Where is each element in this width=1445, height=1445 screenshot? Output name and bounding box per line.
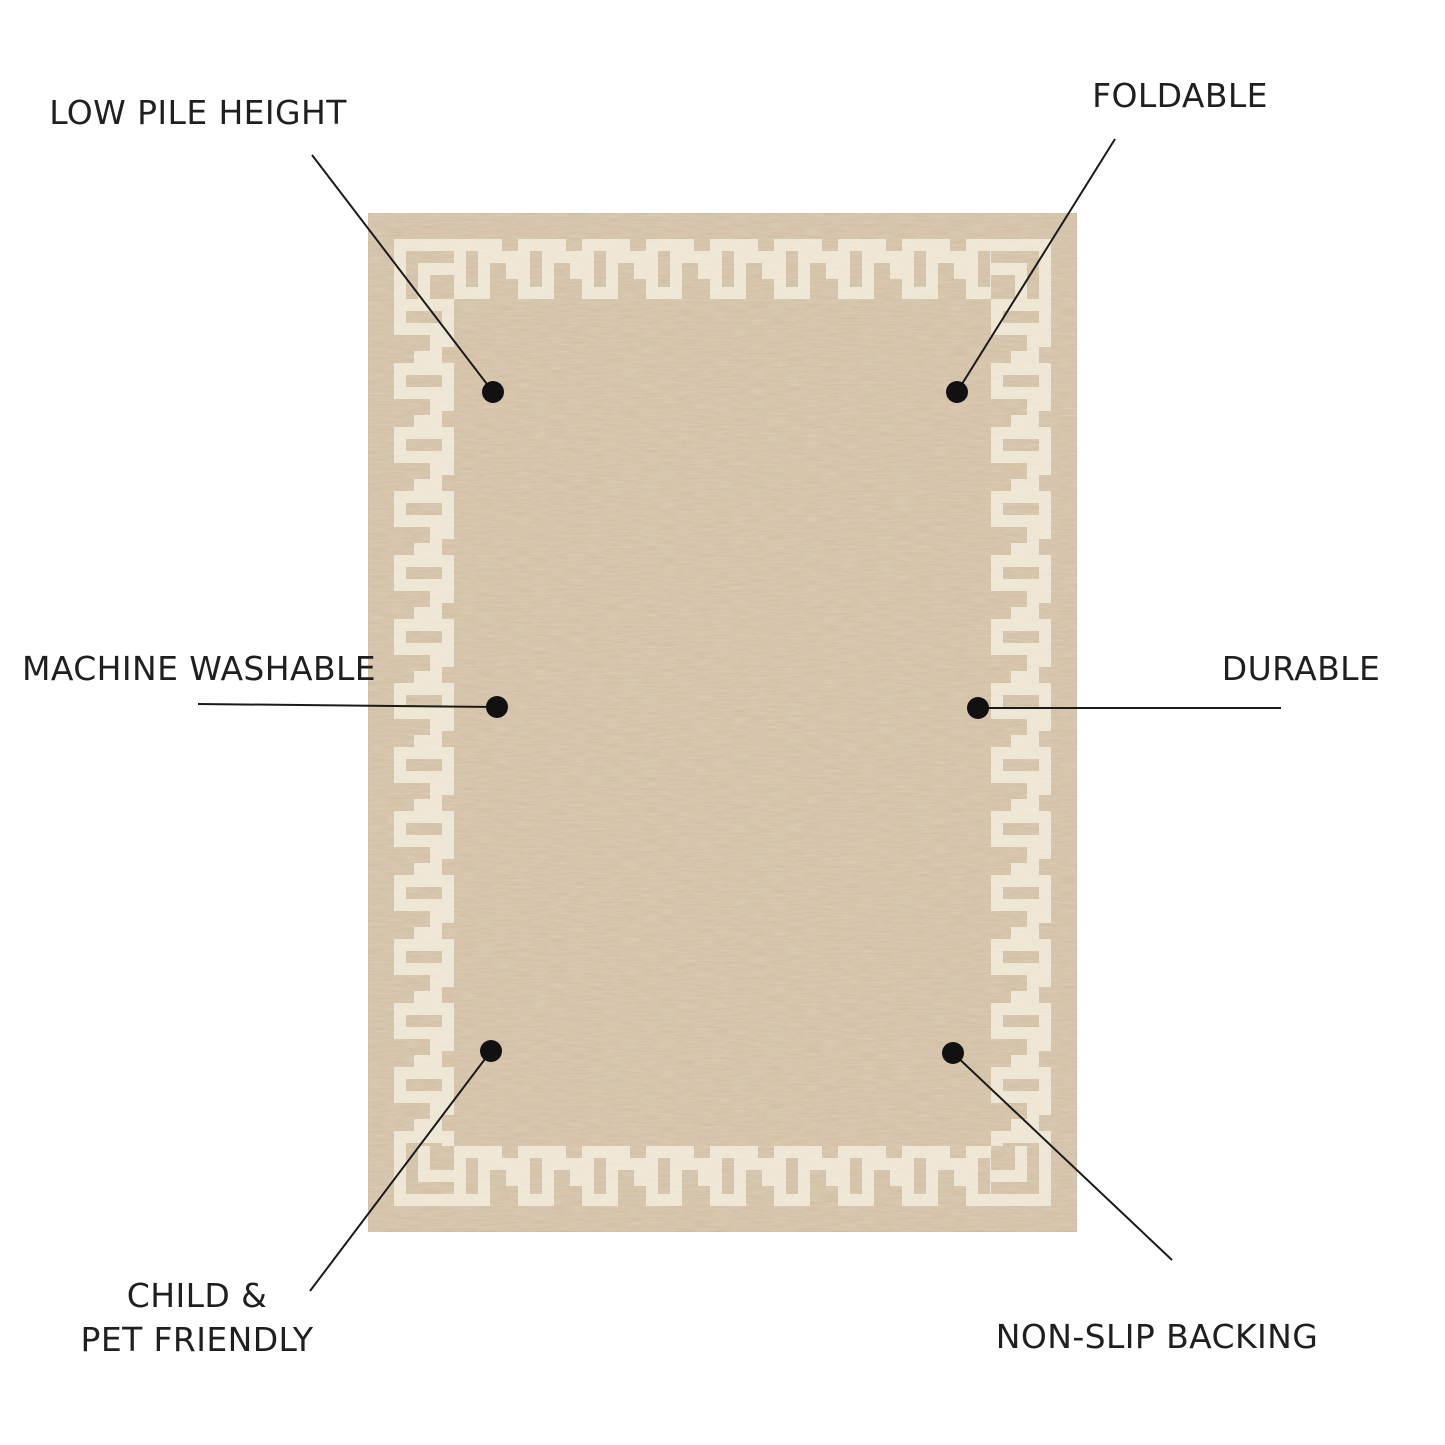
callout-label-machine-washable: MACHINE WASHABLE (22, 647, 376, 691)
callout-label-child-pet-line1: CHILD & (81, 1274, 314, 1318)
rug-svg (368, 213, 1077, 1232)
callout-label-durable: DURABLE (1222, 647, 1380, 691)
callout-label-child-pet: CHILD & PET FRIENDLY (81, 1274, 314, 1362)
product-annotation-diagram: LOW PILE HEIGHT FOLDABLE MACHINE WASHABL… (0, 0, 1445, 1445)
callout-label-child-pet-line2: PET FRIENDLY (81, 1318, 314, 1362)
rug-image (368, 213, 1077, 1232)
rug-texture-grain (368, 213, 1077, 1232)
callout-label-low-pile: LOW PILE HEIGHT (49, 91, 347, 135)
callout-label-non-slip: NON-SLIP BACKING (996, 1315, 1318, 1359)
callout-label-foldable: FOLDABLE (1092, 74, 1268, 118)
